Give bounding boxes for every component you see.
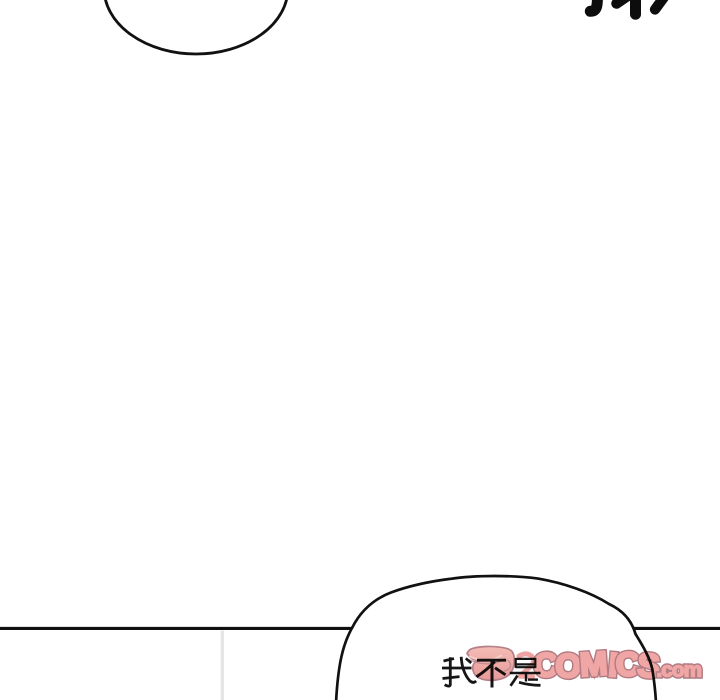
svg-text:.com: .com [657,659,702,682]
svg-text:M: M [579,644,609,683]
svg-text:O: O [554,646,582,684]
